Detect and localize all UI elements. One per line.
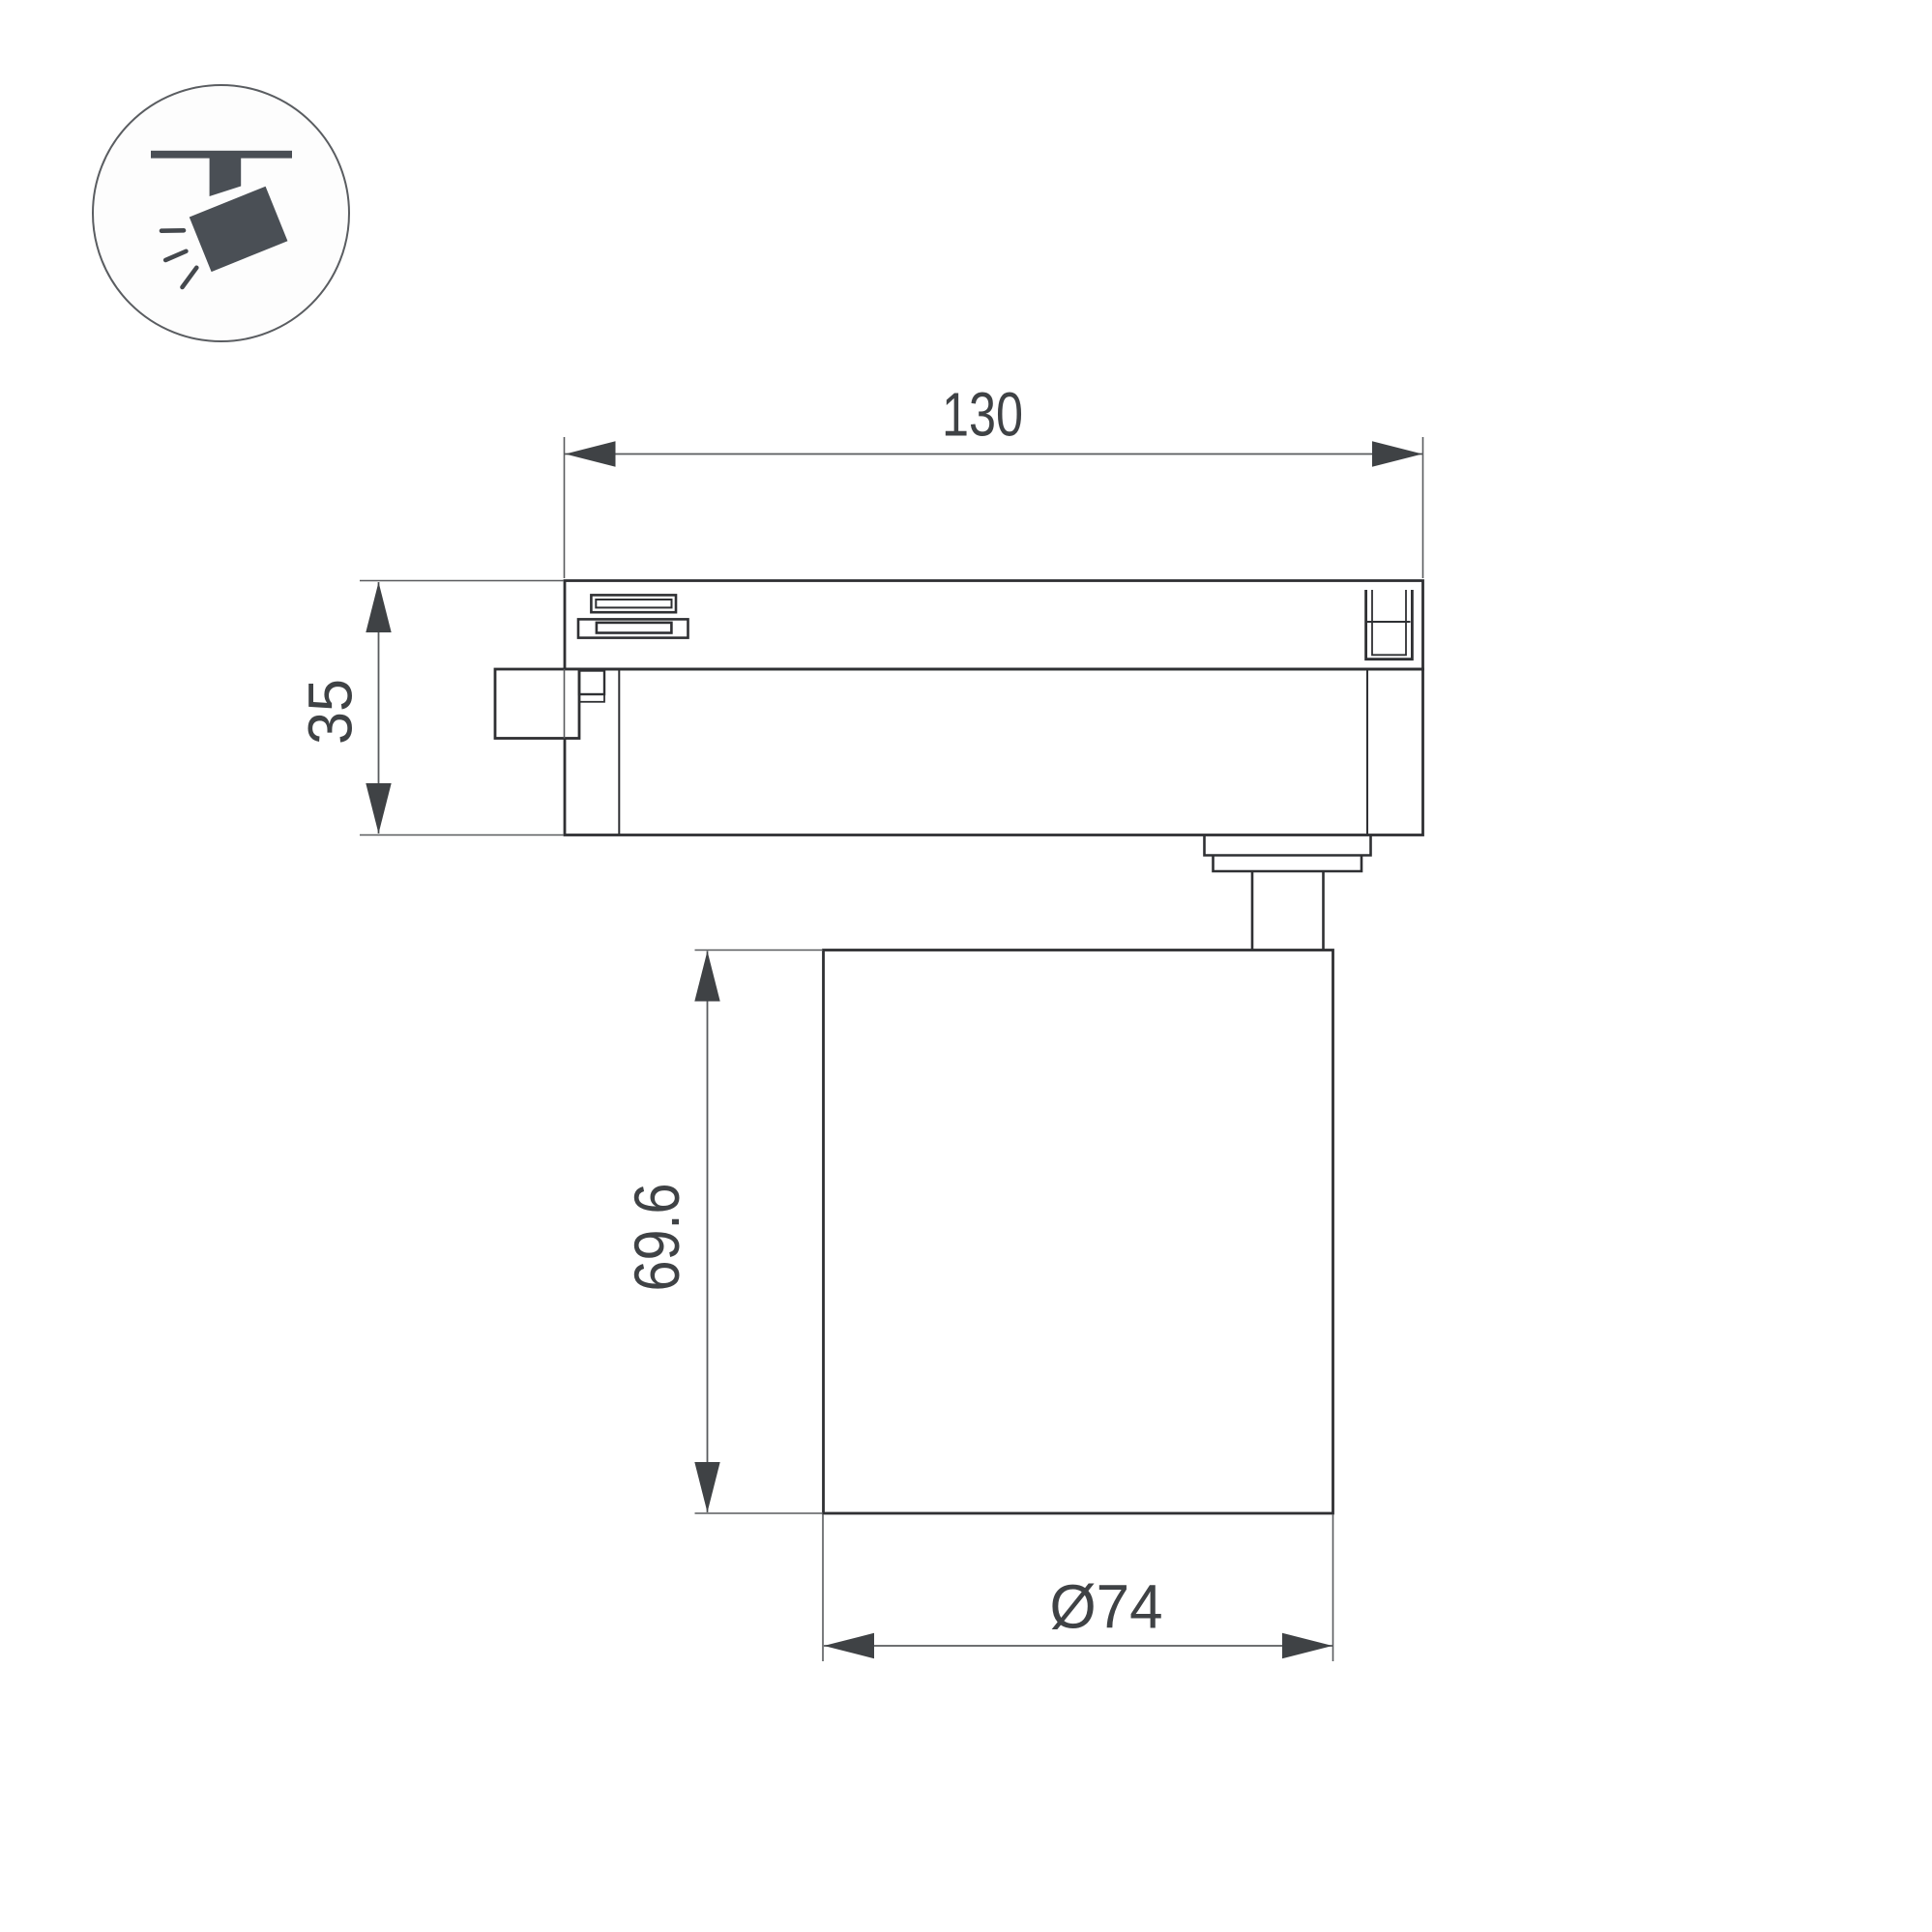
svg-text:35: 35 — [296, 679, 366, 745]
svg-text:130: 130 — [942, 380, 1023, 450]
svg-text:69.6: 69.6 — [621, 1184, 692, 1292]
svg-text:Ø74: Ø74 — [1050, 1572, 1163, 1642]
